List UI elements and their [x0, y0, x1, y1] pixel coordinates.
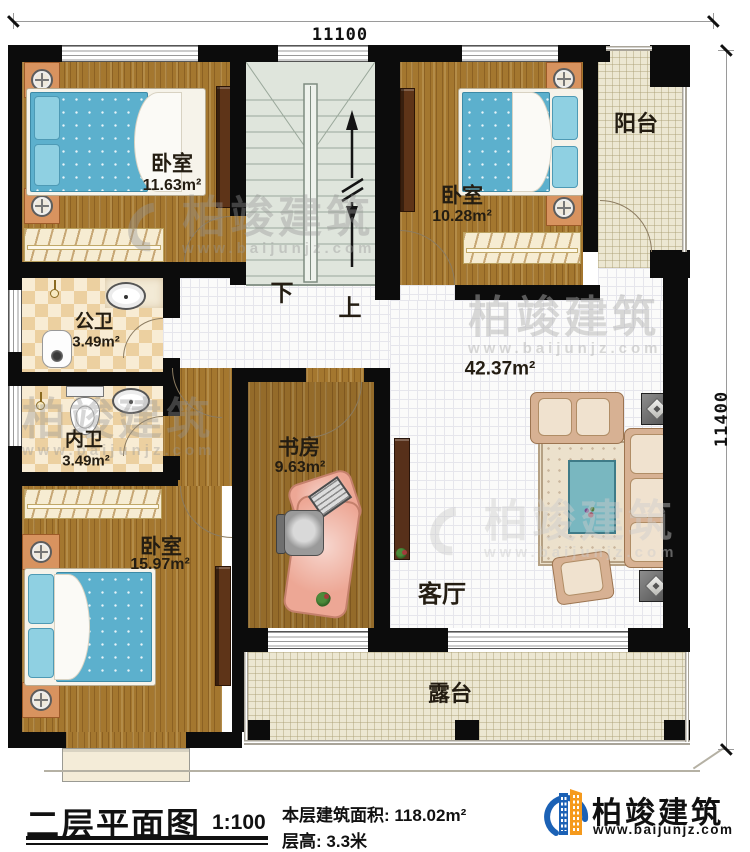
squat-toilet-icon — [42, 330, 72, 368]
wall-segment — [558, 45, 610, 62]
dresser-icon — [216, 86, 231, 208]
floor-height-label: 层高: — [282, 832, 322, 851]
room-area-bedroom-top-left: 11.63m² — [143, 178, 202, 194]
floor-study-door-patch — [306, 368, 364, 382]
lamp-icon — [553, 68, 575, 90]
tv-cabinet-icon — [394, 438, 410, 560]
floor-plan-sheet: 柏竣建筑 www.baijunjz.com 柏竣建筑 www.baijunjz.… — [0, 0, 750, 852]
floor-height-value: 3.3米 — [326, 832, 367, 851]
sink-icon — [106, 282, 146, 310]
lamp-icon — [31, 195, 53, 217]
room-label-bedroom-top-left: 卧室 — [151, 154, 193, 175]
lamp-icon — [553, 197, 575, 219]
room-area-private-bathroom: 3.49m² — [62, 454, 110, 469]
plant-icon — [396, 548, 407, 559]
sofa-cushion — [576, 398, 610, 436]
wall-segment — [8, 45, 22, 290]
room-label-living: 客厅 — [418, 583, 466, 607]
wall-segment — [20, 372, 163, 386]
dimension-width: 11100 — [290, 25, 390, 45]
room-area-public-bathroom: 3.49m² — [72, 335, 120, 350]
wardrobe-icon — [463, 232, 581, 264]
nightstand — [22, 534, 60, 570]
room-label-private-bathroom: 内卫 — [65, 431, 103, 450]
dresser-icon — [400, 88, 415, 212]
wall-segment — [230, 62, 246, 216]
wardrobe-icon — [24, 489, 162, 519]
title-rule — [26, 843, 268, 845]
wall-segment — [163, 278, 180, 318]
wall-corner — [650, 45, 690, 87]
lamp-icon — [50, 289, 59, 298]
window — [62, 45, 198, 62]
room-area-study: 9.63m² — [275, 460, 326, 476]
sofa-cushion — [560, 557, 604, 596]
plant-icon — [316, 592, 331, 607]
floor-area-label: 本层建筑面积: — [282, 806, 390, 825]
table-decor — [582, 505, 598, 519]
stairs-up-label: 上 — [339, 297, 362, 320]
wall-segment — [198, 45, 278, 62]
terrace-parapet — [244, 740, 690, 745]
drawing-scale: 1:100 — [212, 811, 266, 835]
pillow — [552, 96, 578, 140]
wall-segment — [375, 285, 400, 300]
coffee-table-icon — [568, 460, 616, 534]
bay-window — [62, 748, 190, 782]
dimension-line-top — [13, 21, 713, 22]
terrace-parapet — [685, 652, 689, 742]
wall-segment — [368, 628, 448, 652]
nightstand — [22, 682, 60, 718]
sofa-cushion — [538, 398, 572, 436]
wall-segment — [8, 472, 178, 486]
floor-bay-patch — [66, 732, 186, 748]
window — [8, 290, 22, 352]
floor-area-line: 本层建筑面积: 118.02m² — [282, 801, 466, 826]
pillow — [28, 628, 54, 678]
floor-hall-patch — [400, 285, 455, 300]
wall-segment — [663, 268, 688, 640]
wall-segment — [455, 285, 600, 300]
title-rule — [26, 836, 268, 840]
pillow — [34, 96, 60, 140]
chair-icon — [284, 510, 324, 556]
wall-segment — [583, 62, 598, 252]
balcony-parapet — [682, 87, 687, 252]
lamp-icon — [30, 689, 52, 711]
room-area-bedroom-bottom-left: 15.97m² — [130, 557, 190, 573]
stairs-down-label: 下 — [271, 282, 294, 305]
window — [8, 386, 22, 446]
wall-segment — [375, 45, 400, 285]
sink-icon — [112, 388, 150, 414]
roof-outline — [44, 770, 700, 772]
room-label-bedroom-top-right: 卧室 — [441, 186, 483, 207]
window — [278, 45, 368, 62]
window — [448, 631, 628, 649]
floor-door-patch — [230, 216, 246, 262]
room-label-study: 书房 — [278, 438, 320, 459]
wall-segment — [628, 628, 690, 652]
stairs-bottom-edge — [246, 284, 375, 286]
wardrobe-icon — [24, 228, 164, 262]
room-label-public-bathroom: 公卫 — [75, 313, 113, 332]
room-label-bedroom-bottom-left: 卧室 — [140, 537, 182, 558]
floor-area-value: 118.02m² — [394, 806, 466, 825]
wall-segment — [186, 732, 242, 748]
window — [268, 631, 368, 649]
dimension-height: 11400 — [712, 384, 732, 454]
balcony-parapet — [606, 46, 652, 51]
bed-sheet — [512, 92, 552, 192]
floor-height-line: 层高: 3.3米 — [282, 827, 367, 852]
brand-website: www.baijunjz.com — [593, 822, 734, 837]
dresser-icon — [215, 566, 231, 686]
wall-segment — [248, 368, 306, 382]
room-area-living: 42.37m² — [465, 360, 536, 379]
wall-segment — [8, 446, 22, 732]
wall-segment — [230, 262, 246, 285]
lamp-icon — [36, 401, 45, 410]
wall-segment — [232, 368, 248, 628]
wall-segment — [8, 262, 246, 278]
stairs-icon — [246, 62, 375, 285]
toilet-tank — [66, 386, 104, 397]
pillow — [28, 574, 54, 624]
wall-segment — [232, 628, 268, 652]
pillow — [552, 146, 578, 188]
wall-segment — [374, 368, 390, 628]
wall-segment — [8, 732, 66, 748]
pillow — [34, 144, 60, 186]
room-label-balcony: 阳台 — [614, 113, 658, 135]
brand-logo-icon — [544, 786, 590, 844]
terrace-parapet — [244, 652, 248, 742]
room-label-terrace: 露台 — [428, 683, 472, 705]
room-area-bedroom-top-right: 10.28m² — [432, 209, 492, 225]
window — [462, 45, 558, 62]
lamp-icon — [30, 541, 52, 563]
